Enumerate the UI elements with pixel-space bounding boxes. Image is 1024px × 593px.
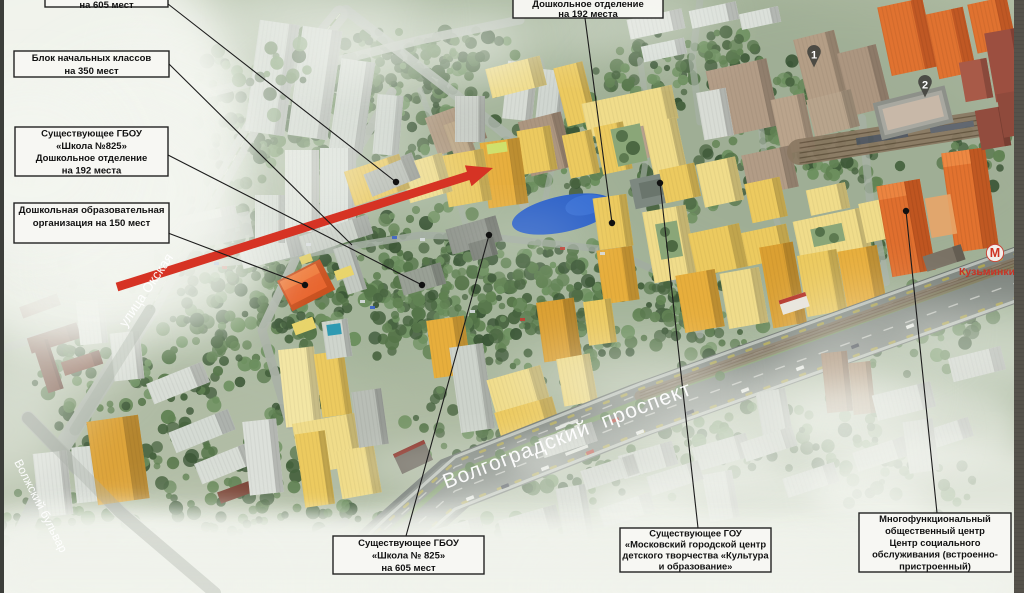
svg-text:М: М (990, 246, 1000, 260)
svg-text:Дошкольное отделение: Дошкольное отделение (36, 153, 148, 164)
svg-text:на 605 мест: на 605 мест (381, 563, 436, 574)
svg-text:на 350 мест: на 350 мест (64, 66, 119, 77)
svg-text:2: 2 (922, 80, 928, 92)
svg-text:Центр социального: Центр социального (889, 537, 980, 548)
svg-text:Многофункциональный: Многофункциональный (879, 513, 991, 524)
svg-text:Блок начальных классов: Блок начальных классов (32, 53, 152, 64)
svg-text:Дошкольная образовательная: Дошкольная образовательная (19, 205, 165, 216)
svg-text:Существующее ГБОУ: Существующее ГБОУ (358, 538, 459, 549)
svg-text:Существующее ГОУ: Существующее ГОУ (649, 528, 742, 539)
svg-text:1: 1 (811, 50, 817, 62)
svg-text:общественный центр: общественный центр (885, 525, 985, 536)
svg-text:Существующее ГБОУ: Существующее ГБОУ (41, 129, 142, 140)
svg-text:«Школа №825»: «Школа №825» (56, 141, 127, 152)
svg-text:организация на 150 мест: организация на 150 мест (33, 218, 151, 229)
svg-text:пристроенный): пристроенный) (899, 560, 971, 571)
svg-text:обслуживания (встроенно-: обслуживания (встроенно- (872, 549, 998, 560)
svg-text:на 192 места: на 192 места (62, 165, 122, 176)
svg-text:«Школа № 825»: «Школа № 825» (372, 551, 445, 562)
svg-text:Кузьминки: Кузьминки (959, 266, 1015, 278)
svg-text:детского творчества «Культура: детского творчества «Культура (622, 550, 769, 561)
svg-text:и образование»: и образование» (659, 561, 733, 572)
svg-text:на 605 мест: на 605 мест (79, 0, 134, 11)
svg-text:на 192 места: на 192 места (558, 9, 618, 20)
svg-text:«Московский городской центр: «Московский городской центр (625, 539, 766, 550)
